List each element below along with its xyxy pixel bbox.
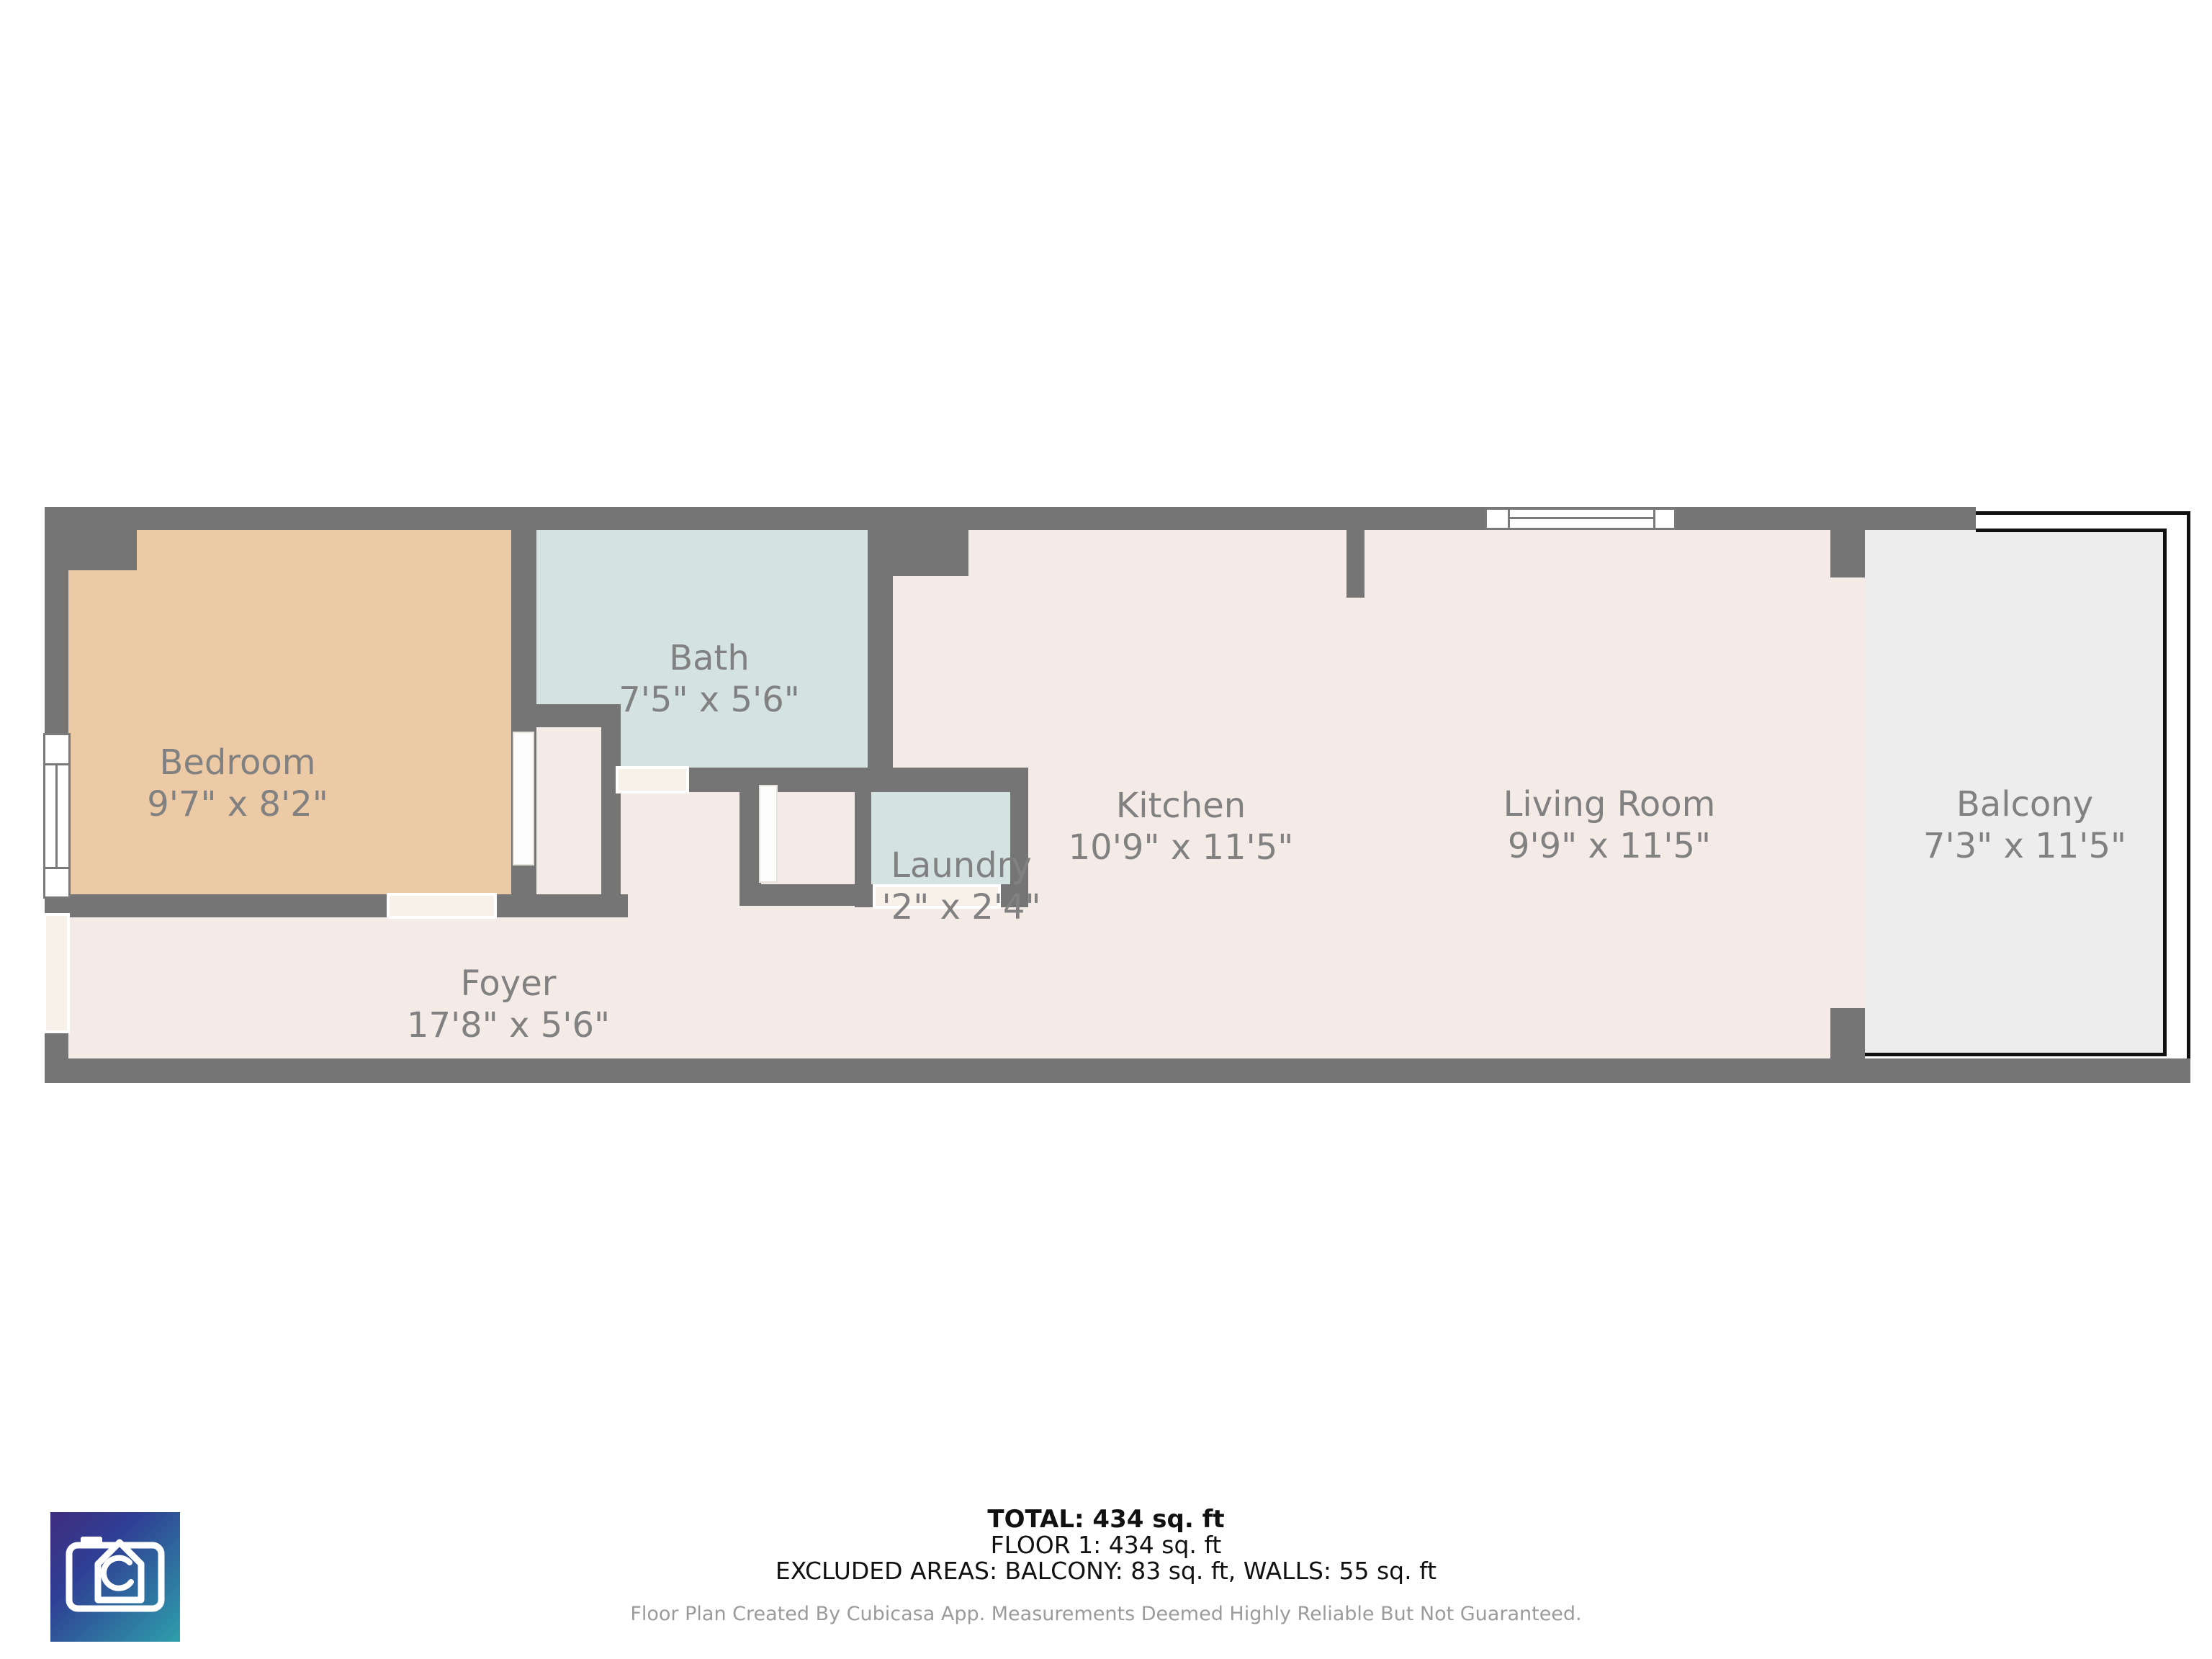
wall-top <box>45 507 1976 530</box>
door-leaf-hall <box>759 785 778 883</box>
room-name: Living Room <box>1503 783 1716 825</box>
window-bedroom-mullion <box>55 765 58 867</box>
room-name: Bath <box>669 637 750 679</box>
room-dims: '2" x 2'4" <box>881 886 1040 928</box>
wall-kitchen-living-stub <box>1346 530 1364 598</box>
door-opening-bedroom <box>387 893 497 919</box>
summary-total: TOTAL: 434 sq. ft <box>0 1506 2212 1532</box>
window-living-jamb-right <box>1653 509 1655 529</box>
balcony-outer-rail-top <box>1976 511 2190 515</box>
camera-house-icon <box>50 1512 180 1642</box>
room-dims: 9'9" x 11'5" <box>1508 825 1711 867</box>
room-name: Kitchen <box>1116 785 1246 827</box>
area-summary: TOTAL: 434 sq. ft FLOOR 1: 434 sq. ft EX… <box>0 1506 2212 1584</box>
cubicasa-logo <box>50 1512 180 1642</box>
balcony-outer-rail-right <box>2187 511 2190 1083</box>
wall-bedroom-bottom <box>68 894 628 917</box>
balcony-inner-rail-bottom <box>1865 1053 2167 1056</box>
wall-closet-right <box>601 704 621 917</box>
wall-living-balcony-bottom-stub <box>1830 1008 1865 1058</box>
room-name: Foyer <box>461 963 557 1004</box>
room-label-foyer: Foyer 17'8" x 5'6" <box>364 963 652 1046</box>
wall-living-balcony-top-stub <box>1830 530 1865 577</box>
window-living-mullion <box>1510 517 1653 519</box>
summary-floor: FLOOR 1: 434 sq. ft <box>0 1532 2212 1558</box>
bedroom-floor <box>68 530 511 894</box>
room-name: Laundry <box>891 845 1032 886</box>
room-label-bath: Bath 7'5" x 5'6" <box>565 637 853 721</box>
wall-bath-bottom-band <box>688 768 1028 792</box>
floor-plan-page: Bedroom 9'7" x 8'2" Bath 7'5" x 5'6" Lau… <box>0 0 2212 1659</box>
summary-excluded: EXCLUDED AREAS: BALCONY: 83 sq. ft, WALL… <box>0 1558 2212 1584</box>
balcony-inner-rail-top <box>1976 529 2166 532</box>
room-dims: 9'7" x 8'2" <box>147 783 328 825</box>
wall-bedroom-notch <box>67 530 137 570</box>
window-bedroom-line-bottom <box>45 867 69 869</box>
wall-kitchen-upper-block <box>868 530 968 576</box>
room-label-laundry: Laundry '2" x 2'4" <box>835 845 1087 928</box>
door-opening-entry <box>43 913 70 1033</box>
room-dims: 7'3" x 11'5" <box>1923 825 2126 867</box>
room-dims: 10'9" x 11'5" <box>1069 827 1294 868</box>
room-name: Bedroom <box>159 742 315 783</box>
room-label-bedroom: Bedroom 9'7" x 8'2" <box>115 742 360 825</box>
door-opening-bath <box>616 766 689 793</box>
room-label-balcony: Balcony 7'3" x 11'5" <box>1881 783 2169 867</box>
disclaimer-text: Floor Plan Created By Cubicasa App. Meas… <box>0 1603 2212 1625</box>
door-leaf-closet <box>513 732 534 866</box>
wall-bottom <box>45 1058 2190 1083</box>
room-name: Balcony <box>1956 783 2093 825</box>
room-dims: 17'8" x 5'6" <box>407 1004 610 1046</box>
room-dims: 7'5" x 5'6" <box>619 679 800 721</box>
room-label-living-room: Living Room 9'9" x 11'5" <box>1429 783 1789 867</box>
